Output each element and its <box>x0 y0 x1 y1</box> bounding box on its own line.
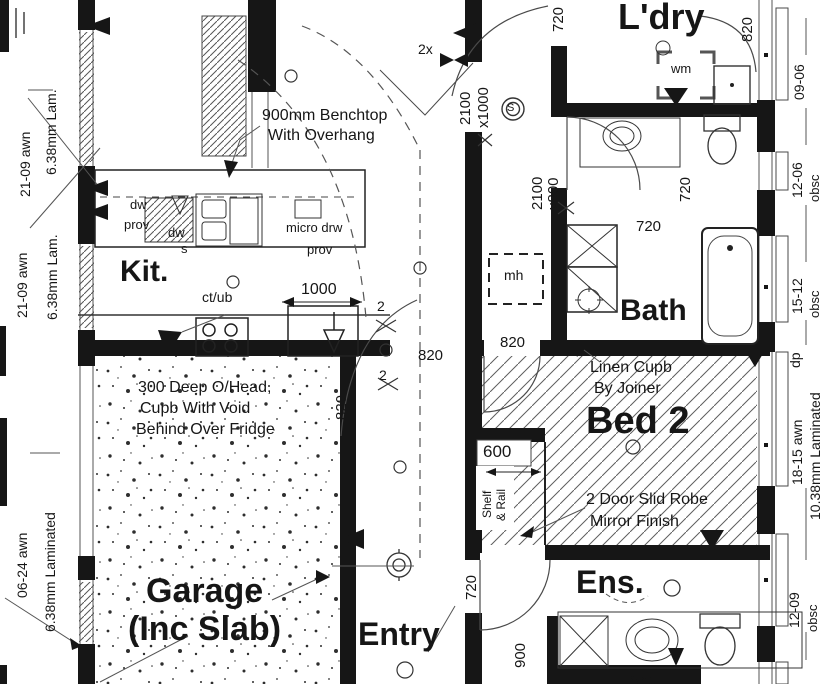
window-label-left-1-size: 21-09 awn <box>18 132 33 197</box>
window-label-left-2-glass: 6.38mm Lam. <box>45 234 60 320</box>
note-ohead-1: 300 Deep O/Head, <box>138 380 271 397</box>
dim-820-bed2: 820 <box>500 335 525 351</box>
bathtub <box>702 228 758 344</box>
window-label-left-1-glass: 6.38mm Lam. <box>44 89 59 175</box>
dim-720-bath-b: 720 <box>636 219 661 235</box>
qty-2a: 2 <box>377 299 385 314</box>
tag-mh: mh <box>504 268 523 283</box>
room-label-kitchen: Kit. <box>120 256 168 288</box>
note-benchtop-2: With Overhang <box>268 128 375 145</box>
note-ohead-2: Cupb With Void <box>140 401 250 418</box>
tag-micro-prov: prov <box>307 243 332 257</box>
plan-linework <box>0 0 828 684</box>
note-linen-2: By Joiner <box>594 381 661 398</box>
dim-720-bath-a: 720 <box>678 177 694 202</box>
dim-kitchen-window: 1000 <box>301 282 337 299</box>
note-benchtop-1: 900mm Benchtop <box>262 108 387 125</box>
tag-wm: wm <box>671 62 691 76</box>
dim-hall-opening: 2100 <box>458 92 474 125</box>
dim-720-ens: 720 <box>464 575 480 600</box>
ens-toilet <box>700 614 740 665</box>
room-label-ensuite: Ens. <box>576 566 644 600</box>
window-label-right-4-glass: 10.38mm Laminated <box>808 392 823 520</box>
tag-dw-prov: prov <box>124 218 149 232</box>
note-robe-2: Mirror Finish <box>590 514 679 531</box>
room-label-garage: Garage <box>146 574 263 610</box>
room-label-bath: Bath <box>620 295 687 327</box>
microwave-prov <box>295 200 321 218</box>
dim-820-laundry: 820 <box>740 17 756 42</box>
dim-820-entry: 820 <box>418 348 443 364</box>
window-label-right-5-glass: obsc <box>806 605 820 632</box>
dim-bath-door-w: x800 <box>546 177 562 210</box>
sash-bowties <box>440 53 468 67</box>
dim-ens-vanity: 900 <box>513 643 529 668</box>
tag-micro: micro drw <box>286 221 342 235</box>
bath-vanity <box>580 118 680 167</box>
tag-dw: dw <box>130 198 147 212</box>
tag-shelf: Shelf <box>481 491 494 518</box>
window-label-left-3-glass: 6.38mm Laminated <box>43 512 58 632</box>
tag-smoke: S <box>507 103 514 115</box>
window-label-right-2-glass: obsc <box>808 175 822 202</box>
linen-cupboard <box>567 225 617 312</box>
window-label-left-3-size: 06-24 awn <box>15 533 30 598</box>
window-label-right-2: 12-06 <box>790 162 805 198</box>
meter-symbol <box>387 549 411 581</box>
window-label-left-2-size: 21-09 awn <box>15 253 30 318</box>
tag-shelf-partial: Shelf <box>630 673 664 684</box>
dim-bath-door: 2100 <box>530 177 546 210</box>
window-label-right-1: 09-06 <box>792 64 807 100</box>
dim-robe-depth: 600 <box>483 443 511 461</box>
dim-hall-opening-w: x1000 <box>476 87 492 128</box>
window-label-right-dp: dp <box>788 352 803 368</box>
window-label-right-4: 18-15 awn <box>790 420 805 485</box>
window-label-right-5: 12-09 <box>787 592 802 628</box>
tag-sink: s <box>181 242 188 256</box>
room-label-laundry: L'dry <box>618 0 705 36</box>
tag-dw2: dw <box>168 226 185 240</box>
floor-plan: Kit. L'dry Bath Bed 2 Garage (Inc Slab) … <box>0 0 828 684</box>
window-label-right-3-glass: obsc <box>808 291 822 318</box>
note-linen-1: Linen Cupb <box>590 360 672 377</box>
dim-720-laundry: 720 <box>551 7 567 32</box>
note-robe-1: 2 Door Slid Robe <box>586 492 708 509</box>
tag-cooktop: ct/ub <box>202 290 232 305</box>
dim-820-fridge: 820 <box>334 395 350 420</box>
room-label-garage-2: (Inc Slab) <box>128 612 281 648</box>
room-label-entry: Entry <box>358 618 440 652</box>
bath-toilet <box>704 115 740 164</box>
window-label-right-3: 15-12 <box>790 278 805 314</box>
pantry-window <box>202 16 246 156</box>
cutoff-fragments <box>16 8 24 38</box>
tag-rail: & Rail <box>495 489 508 521</box>
qty-2b: 2 <box>379 368 387 383</box>
note-ohead-3: Behind Over Fridge <box>136 422 275 439</box>
room-label-bed2: Bed 2 <box>586 402 689 442</box>
qty-2x: 2x <box>418 42 433 57</box>
